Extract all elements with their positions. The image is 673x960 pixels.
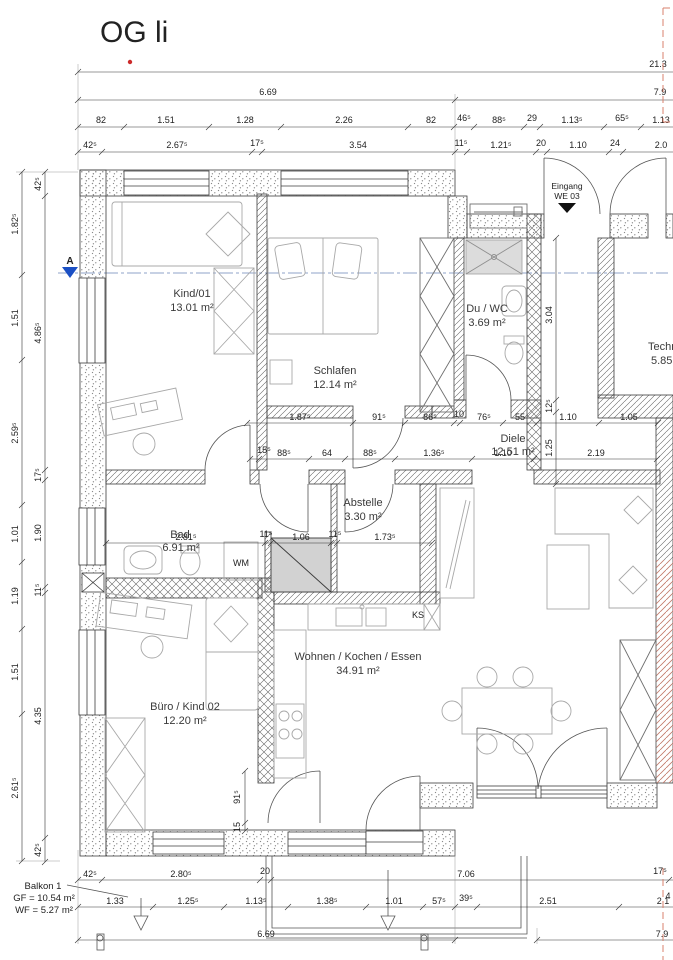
bed [112,202,250,266]
window [79,278,105,363]
entrance-label-line2: WE 03 [554,191,580,201]
door-duwc [466,355,511,400]
dim-label: 29 [527,113,537,123]
room-label-wohnen: Wohnen / Kochen / Essen [295,651,422,663]
dim-label: 1.38⁵ [316,896,338,906]
dim-label: 1.73⁵ [374,532,396,542]
dim-label: 1.10 [559,412,577,422]
dim-label: 1.21⁵ [490,140,512,150]
dim-label: 1.33 [106,896,124,906]
dim-label: 15 [232,822,242,832]
dim-label: 11⁵ [33,583,43,596]
dim-label: 88⁵ [492,115,506,125]
door-buero [268,771,320,823]
dim-label: 1.51 [157,115,175,125]
washbasin [124,546,162,574]
balcony-door-sill [477,786,607,798]
shaft-column [420,238,454,412]
chair [133,433,155,455]
dim-label: 1.10 [569,140,587,150]
dim-label: 2.51 [539,896,557,906]
red-hatch-wall [656,560,673,783]
room-label-bad: Bad [170,529,190,541]
dim-label: 82 [96,115,106,125]
entrance-arrow-icon [558,203,576,213]
dim-label: 42⁵ [33,177,43,191]
dim-label: 1.13 [652,115,670,125]
balcony-door-left [477,728,538,790]
sofa [555,488,653,608]
dim-label: 1.28 [236,115,254,125]
dim-label: 20 [260,866,270,876]
wardrobe [214,268,254,354]
wardrobe [105,718,145,832]
dim-label: 88⁵ [363,448,377,458]
desk [96,592,192,638]
downspout [97,934,104,950]
room-label-diele: Diele [500,433,525,445]
balkon-wf: WF = 5.27 m² [15,905,73,916]
room-area-kind01: 13.01 m² [170,302,214,314]
dim-label: 11⁵ [328,529,341,539]
red-dot-marker [128,60,132,64]
dim-label: 3.54 [349,140,367,150]
section-marker-label: A [66,256,73,267]
room-area-bad: 6.91 m² [162,542,200,554]
dim-label: 46⁵ [457,113,471,123]
dim-label: 12⁵ [544,399,554,413]
dim-label: 1.51 [10,309,20,327]
shower [466,240,522,274]
bed [206,598,258,710]
door-kind01 [205,425,250,470]
entrance-label-line1: Eingang [551,181,582,191]
dim-label: 64 [322,448,332,458]
desk [98,388,183,436]
door-balkon-kueche [366,776,420,830]
fridge [424,604,440,630]
balcony-door-right [538,728,607,790]
dim-label: 42⁵ [33,843,43,857]
dim-label: 1.01 [10,525,20,543]
door-schlafen [353,418,403,468]
dim-label: 4 [665,891,670,901]
page-title: OG li [100,16,168,49]
floor-plan-svg: A [0,0,673,960]
dim-label: 1.82⁵ [10,213,20,235]
dim-label: 91⁵ [232,790,242,804]
balkon-gf: GF = 10.54 m² [13,893,75,904]
door-technik [610,158,666,214]
fridge-label: KS [412,610,424,620]
dim-label: 88⁵ [277,448,291,458]
dim-label: 1.87⁵ [289,412,311,422]
dim-label: 1.19 [10,587,20,605]
room-area-schlafen: 12.14 m² [313,379,357,391]
dim-label: 4.86⁵ [33,322,43,344]
dim-label: 2.80⁵ [170,869,192,879]
dim-label: 1.13⁵ [245,896,267,906]
dim-label: 10 [454,409,464,419]
room-area-duwc: 3.69 m² [468,317,506,329]
dim-label: 2.61⁵ [10,777,20,799]
dim-label: 17⁵ [653,866,667,876]
dim-label: 15⁵ [257,445,271,455]
dim-label: 7.9 [654,87,667,97]
dim-label: 17⁵ [33,468,43,482]
dim-label: 2.0 [655,140,668,150]
dim-label: 1.90 [33,524,43,542]
room-label-kind01: Kind/01 [173,288,210,300]
washing-machine-label: WM [233,558,249,568]
dim-label: 1.13⁵ [561,115,583,125]
window [281,171,408,195]
floorplan-page: A [0,0,673,960]
room-area-wohnen: 34.91 m² [336,665,380,677]
dim-label: 2.19 [587,448,605,458]
dim-label: 4.35 [33,707,43,725]
stove [276,704,304,758]
dim-label: 2.59⁵ [10,422,20,444]
dim-label: 65⁵ [615,113,629,123]
dim-label: 1.05 [620,412,638,422]
balkon-name: Balkon 1 [25,881,62,892]
dim-label: 91⁵ [372,412,386,422]
room-area-technik: 5.85 [651,355,672,367]
tv-board [440,488,474,598]
window [79,630,105,715]
shaft [271,538,331,592]
labels-group: OG li Kind/01 13.01 m² Schlafen 12.14 m²… [13,16,673,916]
dim-label: 86⁵ [423,412,437,422]
double-bed [268,238,378,334]
section-line: A [58,256,668,278]
room-area-diele: 12.51 m² [491,446,535,458]
dim-label: 11⁵ [259,529,272,539]
window [153,832,224,854]
dining-set [442,667,571,754]
room-area-buero: 12.20 m² [163,715,207,727]
dim-label: 3.04 [544,306,554,324]
dim-label: 42⁵ [83,869,97,879]
window [124,171,209,195]
downspout [421,934,428,950]
dim-label: 11⁵ [454,138,467,148]
dim-label: 1.06 [292,532,310,542]
dim-label: 1.36⁵ [423,448,445,458]
dim-label: 2.67⁵ [166,140,188,150]
dim-label: 21.3 [649,59,667,69]
nightstand [270,360,292,384]
window [288,832,366,854]
dim-label: 42⁵ [83,140,97,150]
window [79,508,105,565]
wc [504,336,524,364]
dim-label: 76⁵ [477,412,491,422]
room-label-schlafen: Schlafen [314,365,357,377]
coffee-table [547,545,589,609]
dim-label: 1.51 [10,663,20,681]
chair [141,636,163,658]
room-label-abstelle: Abstelle [343,497,382,509]
wall-duct [82,573,104,592]
room-label-buero: Büro / Kind 02 [150,701,220,713]
dim-label: 7.9 [656,929,669,939]
room-label-technik: Techn [648,341,673,353]
tall-cabinet [620,640,656,780]
dim-label: 1.25⁵ [177,896,199,906]
dim-label: 82 [426,115,436,125]
dim-label: 1.01 [385,896,403,906]
slope-arrow [134,898,148,930]
door-sill [366,831,423,854]
dim-label: 20 [536,138,546,148]
dim-label: 2.26 [335,115,353,125]
dim-label: 1.25 [544,439,554,457]
dim-label: 7.06 [457,869,475,879]
dim-label: 6.69 [259,87,277,97]
dim-label: 57⁵ [432,896,446,906]
door-bad [260,484,308,532]
dim-label: 17⁵ [250,138,264,148]
dim-label: 24 [610,138,620,148]
dim-label: 6.69 [257,929,275,939]
room-label-duwc: Du / WC [466,303,508,315]
room-area-abstelle: 3.30 m² [344,511,382,523]
dim-label: 39⁵ [459,893,473,903]
dim-label: 55 [515,412,525,422]
